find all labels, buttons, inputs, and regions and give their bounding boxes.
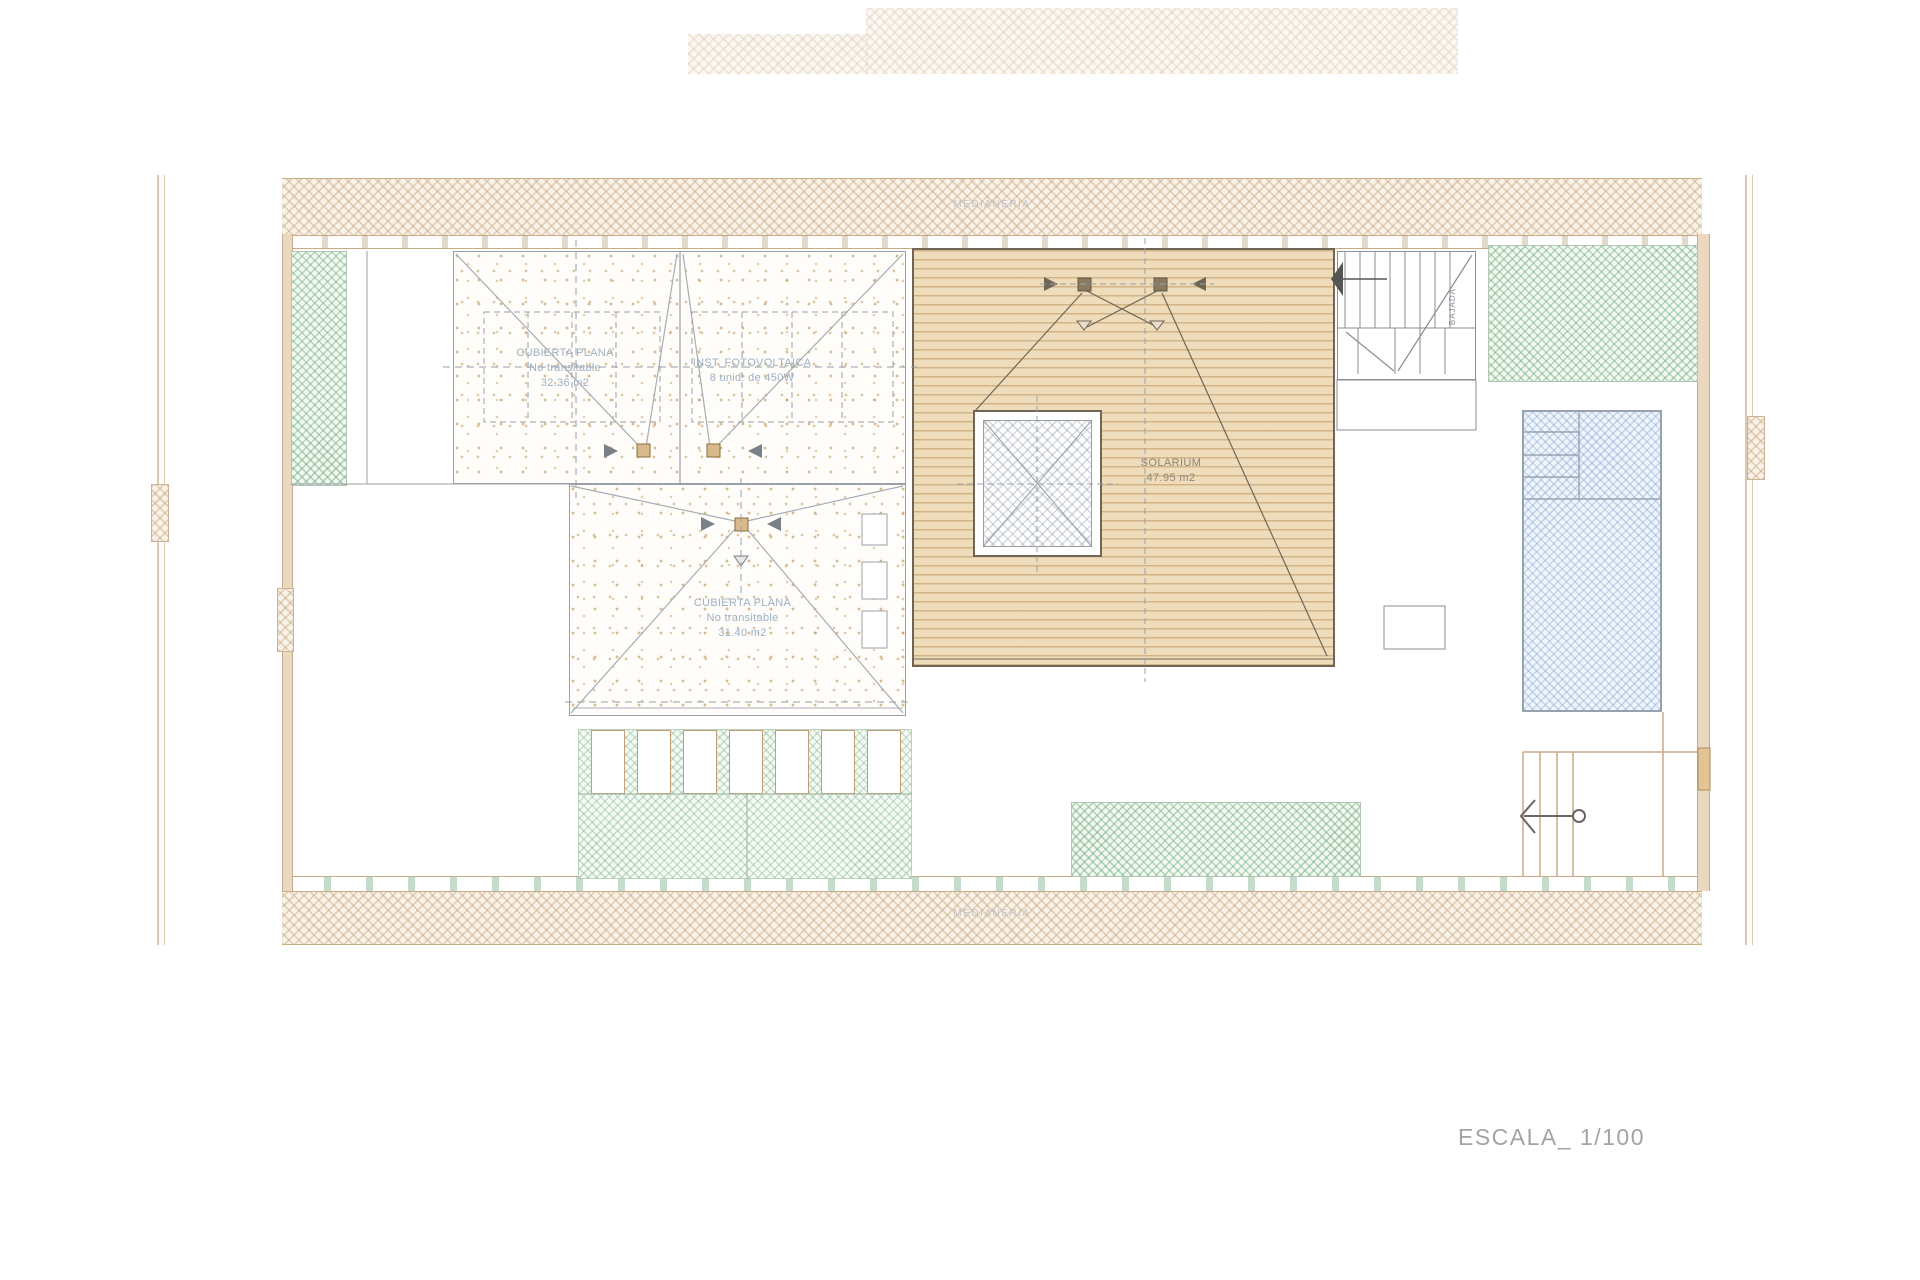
pergola-slat [729,730,763,794]
site-boundary-right-line [1745,175,1747,945]
site-boundary-left-block [151,484,169,542]
roof-title: CUBIERTA PLANA [660,596,825,611]
skylight [973,410,1102,557]
pergola-slat [821,730,855,794]
pergola-slat [775,730,809,794]
solarium-label: SOLARIUM 47.95 m2 [1106,456,1236,487]
planter-left [291,251,347,486]
pv-title: INST. FOTOVOLTAICA [672,356,832,371]
staircase-label: BAJADA [1448,288,1457,325]
left-wall-pilaster [277,588,294,652]
descent-arrow-icon [1521,800,1535,833]
site-boundary-left-line [157,175,159,945]
planter-top-right [1488,245,1698,382]
pool [1522,410,1662,712]
site-boundary-right-line-2 [1752,175,1753,945]
roof-subtitle: No transitable [490,361,640,376]
roof-area: 32.36 m2 [490,376,640,391]
flat-roof-center-label: CUBIERTA PLANA No transitable 31.40 m2 [660,596,825,641]
pv-subtitle: 8 unid. de 450W [672,371,832,386]
pergola-zone [578,729,912,879]
pergola-slat [637,730,671,794]
site-boundary-left-line-2 [164,175,165,945]
party-wall-bottom: MEDIANERIA [282,891,1702,945]
adjacent-hatch-top-right [866,8,1458,74]
planter-bottom-center [1071,802,1361,877]
scale-label: ESCALA_ 1/100 [1458,1124,1645,1151]
pergola-slat [867,730,901,794]
pergola-slat [683,730,717,794]
site-boundary-right-block [1747,416,1765,480]
solarium-area: 47.95 m2 [1106,471,1236,486]
pergola-slat [591,730,625,794]
adjacent-hatch-top-left [688,34,868,74]
stair-landing [1337,380,1476,430]
roof-plan-sheet: MEDIANERIA MEDIANERIA [0,0,1920,1280]
roof-title: CUBIERTA PLANA [490,346,640,361]
side-wall-right [1697,234,1710,891]
party-wall-bottom-label: MEDIANERIA [282,908,1702,919]
terrace-bench [1384,606,1445,649]
flat-roof-left-label: CUBIERTA PLANA No transitable 32.36 m2 [490,346,640,391]
staircase-bottom-lines [1521,712,1710,876]
roof-area: 31.40 m2 [660,626,825,641]
party-wall-top-label: MEDIANERIA [282,199,1702,210]
roof-subtitle: No transitable [660,611,825,626]
skylight-inner [983,420,1092,547]
photovoltaic-label: INST. FOTOVOLTAICA 8 unid. de 450W [672,356,832,386]
descent-arrow-origin [1573,810,1585,822]
party-wall-top: MEDIANERIA [282,178,1702,236]
solarium-title: SOLARIUM [1106,456,1236,471]
